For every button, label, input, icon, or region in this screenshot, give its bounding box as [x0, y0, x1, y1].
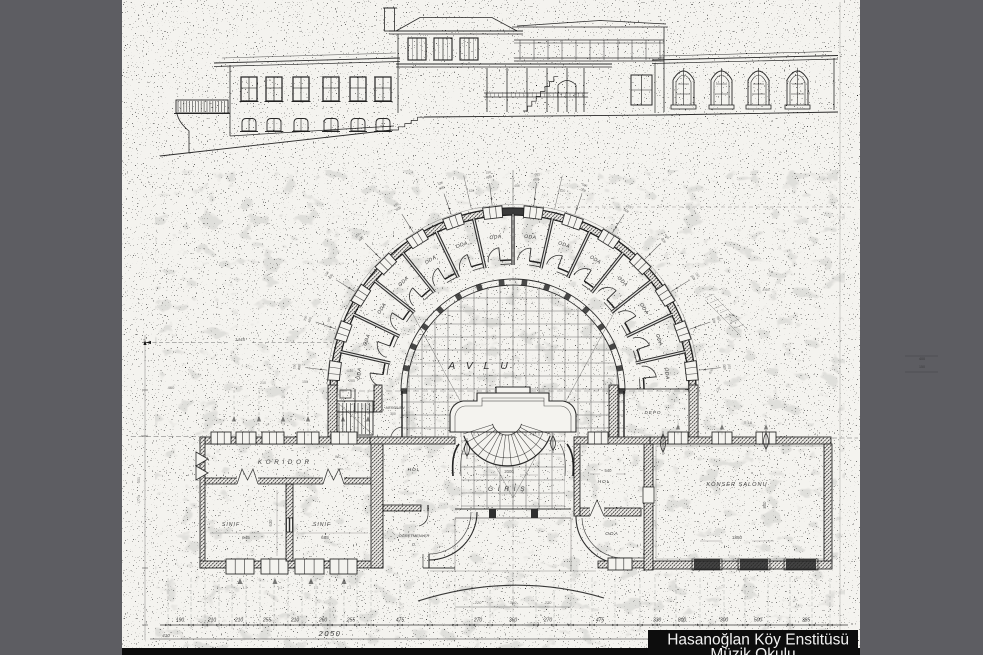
svg-text:150: 150 [302, 380, 308, 384]
svg-text:400: 400 [486, 175, 492, 180]
svg-text:WC: WC [335, 455, 341, 459]
svg-text:270: 270 [473, 618, 483, 624]
svg-text:220: 220 [544, 600, 552, 605]
svg-text:400: 400 [534, 177, 540, 182]
svg-text:O.: O. [412, 542, 416, 547]
svg-text:210: 210 [260, 381, 266, 385]
svg-text:2050: 2050 [318, 629, 342, 638]
svg-text:210: 210 [207, 618, 217, 624]
svg-text:KONSER SALONU: KONSER SALONU [706, 482, 767, 488]
svg-text:360: 360 [509, 618, 518, 624]
svg-text:260: 260 [318, 618, 328, 624]
svg-text:800: 800 [678, 618, 687, 624]
svg-text:400: 400 [297, 364, 302, 370]
svg-text:K O R İ D O R: K O R İ D O R [258, 459, 310, 466]
svg-text:MERDİVEN: MERDİVEN [386, 406, 405, 410]
svg-text:475: 475 [396, 618, 405, 624]
svg-text:150: 150 [534, 172, 540, 177]
svg-text:A V L U: A V L U [447, 360, 512, 372]
svg-text:4.50: 4.50 [347, 369, 353, 373]
svg-text:551: 551 [137, 477, 141, 483]
svg-text:HOL: HOL [598, 479, 611, 485]
svg-text:210: 210 [290, 618, 300, 624]
svg-text:475: 475 [596, 618, 605, 624]
svg-text:300: 300 [720, 618, 729, 624]
svg-text:400: 400 [919, 357, 925, 361]
svg-text:DEPO: DEPO [644, 410, 661, 415]
svg-text:150: 150 [292, 363, 297, 369]
svg-text:≡ 18: ≡ 18 [744, 420, 753, 425]
svg-text:685: 685 [321, 535, 329, 540]
svg-text:450: 450 [514, 184, 520, 188]
svg-text:205: 205 [349, 379, 355, 383]
svg-text:SINIF: SINIF [222, 522, 240, 528]
svg-text:500: 500 [754, 618, 763, 624]
svg-text:385: 385 [802, 618, 811, 624]
svg-text:150: 150 [727, 364, 732, 370]
svg-text:1445: 1445 [235, 337, 246, 342]
svg-text:410: 410 [162, 633, 170, 638]
svg-text:330: 330 [653, 618, 662, 624]
svg-text:ÖĞRETMENLER: ÖĞRETMENLER [399, 533, 430, 538]
svg-text:255: 255 [262, 618, 272, 624]
svg-text:150: 150 [486, 170, 492, 175]
svg-text:150: 150 [919, 365, 925, 369]
svg-text:645: 645 [242, 535, 250, 540]
svg-text:630: 630 [268, 519, 273, 527]
svg-text:1.2: 1.2 [347, 586, 352, 590]
svg-text:2000: 2000 [504, 469, 514, 474]
svg-text:1773: 1773 [137, 496, 141, 504]
svg-text:210: 210 [234, 618, 244, 624]
svg-text:1.2: 1.2 [278, 586, 283, 590]
svg-text:270: 270 [543, 618, 553, 624]
svg-text:220: 220 [474, 600, 482, 605]
svg-text:SINIF: SINIF [313, 522, 331, 528]
svg-text:420: 420 [469, 189, 475, 193]
svg-text:E66: E66 [762, 287, 770, 292]
svg-text:460: 460 [168, 385, 175, 390]
svg-text:800: 800 [762, 501, 767, 509]
svg-text:G İ R İ Ş: G İ R İ Ş [488, 485, 526, 493]
svg-text:Müzik Okulu: Müzik Okulu [710, 646, 795, 655]
svg-text:400: 400 [722, 364, 727, 370]
svg-text:420: 420 [560, 189, 566, 193]
svg-text:255: 255 [346, 618, 356, 624]
svg-text:HOL: HOL [408, 467, 421, 473]
svg-text:360: 360 [510, 600, 517, 605]
svg-text:1.2: 1.2 [243, 586, 248, 590]
svg-text:1350: 1350 [732, 535, 743, 540]
svg-text:1.2: 1.2 [314, 586, 319, 590]
svg-text:300: 300 [390, 412, 396, 416]
svg-text:190: 190 [176, 618, 185, 624]
svg-text:540: 540 [605, 468, 613, 473]
svg-text:ODA: ODA [605, 531, 618, 537]
